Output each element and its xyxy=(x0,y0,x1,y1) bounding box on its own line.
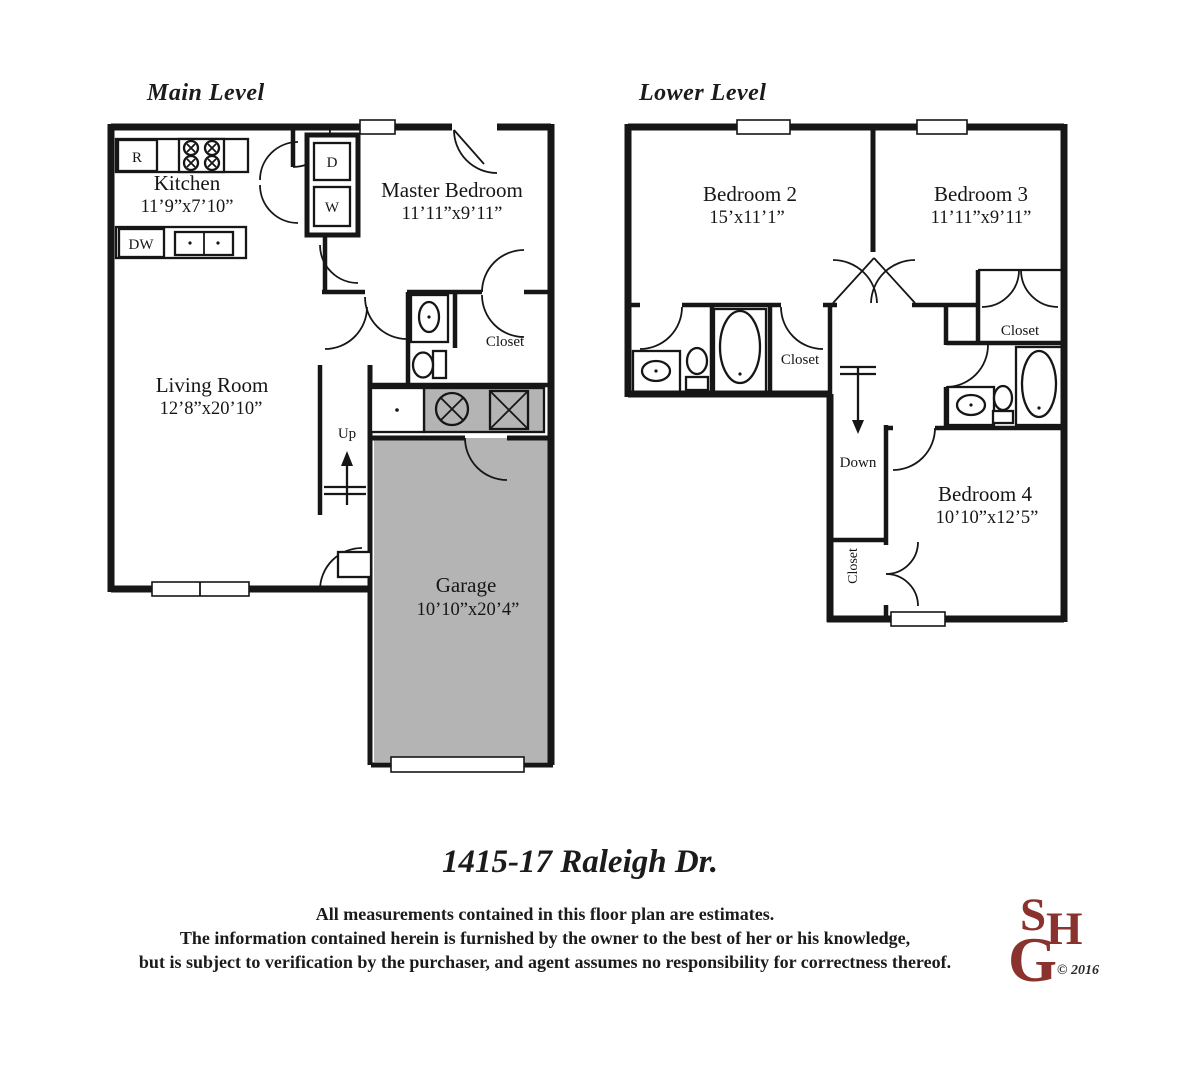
hall-door-arc xyxy=(325,307,367,349)
master-bedroom-dims: 11’11”x9’11” xyxy=(402,204,503,224)
lower-level-plan: Bedroom 2 15’x11’1” Bedroom 3 11’11”x9’1… xyxy=(610,95,1090,645)
bedroom4-label: Bedroom 4 xyxy=(938,482,1032,506)
window xyxy=(737,120,790,134)
toilet-icon xyxy=(993,386,1013,423)
utility-sink-icon xyxy=(371,388,424,432)
utility-area xyxy=(424,388,544,432)
logo-copyright: © 2016 xyxy=(1057,963,1099,979)
address-title: 1415-17 Raleigh Dr. xyxy=(0,844,1160,881)
floor-plan-page: { "plans": { "main": { "title": "Main Le… xyxy=(0,0,1190,1080)
master-door-arc xyxy=(482,250,524,292)
dishwasher-label: DW xyxy=(129,237,155,253)
disclaimer-line: The information contained herein is furn… xyxy=(0,926,1090,950)
bathroom-sink-icon xyxy=(411,295,448,342)
bifold-closet-doors-arc xyxy=(982,270,1058,307)
bedroom4-door-arc xyxy=(893,428,935,470)
dryer-label: D xyxy=(327,155,338,171)
stairs-down-arrow xyxy=(840,367,876,434)
toilet-icon xyxy=(413,351,446,378)
living-room-label: Living Room xyxy=(156,373,269,397)
washer-label: W xyxy=(325,200,340,216)
stairs-up-label: Up xyxy=(338,426,356,442)
bath-door-arc xyxy=(946,345,988,387)
bathtub-icon xyxy=(1016,347,1062,425)
stairs-up-arrow xyxy=(324,451,366,505)
stairs-down-label: Down xyxy=(840,455,877,471)
closet-label: Closet xyxy=(486,334,525,350)
main-level-plan: Kitchen 11’9”x7’10” Master Bedroom 11’11… xyxy=(85,95,585,795)
bedroom3-label: Bedroom 3 xyxy=(934,182,1028,206)
window xyxy=(891,612,945,626)
closet-label: Closet xyxy=(1001,323,1040,339)
master-bedroom-label: Master Bedroom xyxy=(381,178,523,202)
garage-door xyxy=(391,757,524,772)
kitchen-label: Kitchen xyxy=(154,171,221,195)
closet-door-arc xyxy=(482,295,524,337)
garage-label: Garage xyxy=(436,573,497,597)
bedroom2-label: Bedroom 2 xyxy=(703,182,797,206)
bathtub-icon xyxy=(714,309,766,392)
closet-label: Closet xyxy=(781,352,820,368)
bedroom4-closet-doors-arc xyxy=(886,542,918,606)
bathroom-sink-icon xyxy=(633,351,680,392)
disclaimer-line: All measurements contained in this floor… xyxy=(0,902,1090,926)
toilet-icon xyxy=(686,348,708,390)
bath-door-arc xyxy=(640,307,682,349)
window xyxy=(360,120,395,134)
disclaimer-line: but is subject to verification by the pu… xyxy=(0,950,1090,974)
kitchen-dims: 11’9”x7’10” xyxy=(141,197,234,217)
bathroom-sink-icon xyxy=(948,387,994,425)
disclaimer: All measurements contained in this floor… xyxy=(0,902,1090,974)
double-doors-arc xyxy=(833,258,915,303)
closet-label-vertical: Closet xyxy=(846,548,861,584)
refrigerator-label: R xyxy=(132,150,142,166)
bath-door-arc xyxy=(365,297,407,339)
bedroom3-dims: 11’11”x9’11” xyxy=(931,208,1032,228)
bedroom2-dims: 15’x11’1” xyxy=(709,208,784,228)
garage-dims: 10’10”x20’4” xyxy=(417,600,520,620)
garage-landing xyxy=(338,552,371,577)
entry-door-arc xyxy=(454,130,497,173)
closet-door-arc xyxy=(781,307,823,349)
logo-letter-g: G xyxy=(1008,924,1057,997)
window xyxy=(917,120,967,134)
living-room-dims: 12’8”x20’10” xyxy=(160,399,263,419)
bedroom4-dims: 10’10”x12’5” xyxy=(936,508,1039,528)
